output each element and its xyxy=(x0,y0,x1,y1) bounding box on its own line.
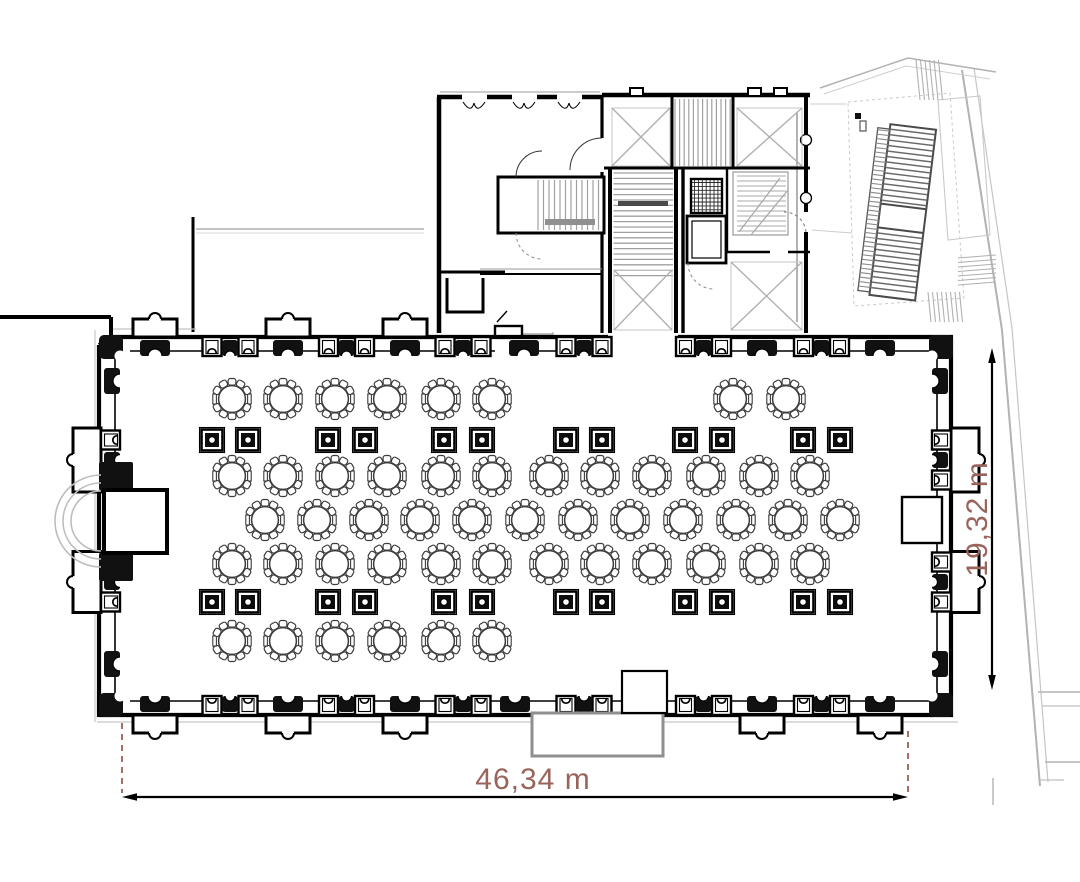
table-side-marker xyxy=(368,471,372,481)
table-chair xyxy=(437,655,445,662)
table-side-marker xyxy=(264,471,268,481)
table-chair xyxy=(313,534,321,541)
wall-pier xyxy=(774,88,787,96)
table-chair xyxy=(574,534,582,541)
table-chair xyxy=(279,655,287,662)
table-side-marker xyxy=(508,559,512,569)
table-chair xyxy=(331,490,339,497)
table-side-marker xyxy=(368,471,372,481)
table-side-marker xyxy=(633,471,637,481)
table-side-marker xyxy=(668,471,672,481)
table-side-marker xyxy=(769,515,773,525)
stair-tread xyxy=(921,60,925,100)
table-chair xyxy=(574,500,582,507)
structural-column xyxy=(554,428,579,453)
structural-column xyxy=(353,590,378,615)
table-top xyxy=(670,507,697,534)
table-chair xyxy=(365,534,373,541)
wall-arch-box xyxy=(472,696,491,715)
table-chair xyxy=(702,490,710,497)
table-top xyxy=(639,463,666,490)
wall-arch-box xyxy=(676,337,695,356)
table-chair xyxy=(331,456,339,463)
elevator xyxy=(687,179,726,263)
wall-arch-box xyxy=(436,337,455,356)
table-chair xyxy=(806,544,814,551)
table-chair xyxy=(545,490,553,497)
table-side-marker xyxy=(581,471,585,481)
table-chair xyxy=(383,578,391,585)
table-top xyxy=(428,463,455,490)
height-dimension-label: 19,32 m xyxy=(961,461,994,576)
table-chair xyxy=(755,490,763,497)
table-top xyxy=(219,551,246,578)
table-side-marker xyxy=(581,559,585,569)
table-chair xyxy=(702,490,710,497)
table-chair xyxy=(331,490,339,497)
table-chair xyxy=(596,544,604,551)
table-chair xyxy=(383,490,391,497)
table-chair xyxy=(437,621,445,628)
table-chair xyxy=(437,413,445,420)
annex-outline xyxy=(938,96,990,240)
wall-arch-box xyxy=(557,337,576,356)
wall-arch-box xyxy=(830,696,849,715)
structural-column xyxy=(470,590,495,615)
table-chair xyxy=(545,544,553,551)
table-chair xyxy=(383,456,391,463)
table-chair xyxy=(416,534,424,541)
stair-tread xyxy=(878,130,890,131)
table-chair xyxy=(437,578,445,585)
table-side-marker xyxy=(646,515,650,525)
table-chair xyxy=(365,534,373,541)
table-side-marker xyxy=(457,636,461,646)
stair-tread xyxy=(872,174,884,175)
stair-tread xyxy=(958,282,996,285)
table-side-marker xyxy=(316,559,320,569)
table-chair xyxy=(416,534,424,541)
table-side-marker xyxy=(457,394,461,404)
table-chair xyxy=(437,655,445,662)
table-side-marker xyxy=(508,471,512,481)
column-center xyxy=(441,599,448,606)
table-side-marker xyxy=(722,559,726,569)
stair-tread xyxy=(872,179,884,180)
table-side-marker xyxy=(717,515,721,525)
structural-column xyxy=(316,590,341,615)
table-chair xyxy=(545,456,553,463)
table-chair xyxy=(488,379,496,386)
wall-niche xyxy=(801,193,812,204)
table-chair xyxy=(313,534,321,541)
wall-arch-box xyxy=(355,337,374,356)
column-center xyxy=(245,599,252,606)
table-side-marker xyxy=(248,636,252,646)
table-chair xyxy=(331,621,339,628)
table-side-marker xyxy=(775,471,779,481)
table-chair xyxy=(755,490,763,497)
table-side-marker xyxy=(248,471,252,481)
wall-arch-box xyxy=(932,553,951,572)
table-chair xyxy=(279,456,287,463)
table-chair xyxy=(279,544,287,551)
structural-column xyxy=(353,428,378,453)
table-side-marker xyxy=(401,515,405,525)
stair-tread xyxy=(930,60,934,100)
table-top xyxy=(459,507,486,534)
wall-arch-box xyxy=(932,593,951,612)
table-side-marker xyxy=(351,636,355,646)
column-center xyxy=(362,437,369,444)
table-chair xyxy=(755,544,763,551)
table-side-marker xyxy=(299,394,303,404)
table-top xyxy=(322,551,349,578)
table-side-marker xyxy=(530,559,534,569)
table-chair xyxy=(228,379,236,386)
stair-tread xyxy=(861,264,873,265)
table-side-marker xyxy=(403,394,407,404)
table-chair xyxy=(648,490,656,497)
table-top xyxy=(693,551,720,578)
wall-arch-box xyxy=(794,696,813,715)
table-top xyxy=(512,507,539,534)
table-chair xyxy=(702,456,710,463)
table-side-marker xyxy=(473,471,477,481)
column-center xyxy=(209,437,216,444)
stair-tread xyxy=(960,292,963,322)
column-center xyxy=(325,437,332,444)
table-chair xyxy=(383,379,391,386)
table-chair xyxy=(836,534,844,541)
stair-tread xyxy=(866,223,878,224)
table-chair xyxy=(383,655,391,662)
stair-tread xyxy=(870,188,882,189)
column-center xyxy=(563,599,570,606)
table-top xyxy=(536,551,563,578)
stair-tread xyxy=(859,282,871,283)
table-chair xyxy=(228,578,236,585)
table-side-marker xyxy=(299,394,303,404)
table-side-marker xyxy=(299,636,303,646)
table-side-marker xyxy=(664,515,668,525)
entrance-steps-arc xyxy=(71,491,101,551)
table-side-marker xyxy=(299,559,303,569)
table-side-marker xyxy=(403,471,407,481)
table-chair xyxy=(702,456,710,463)
wall-arch-box xyxy=(319,696,338,715)
table-side-marker xyxy=(616,471,620,481)
table-side-marker xyxy=(248,559,252,569)
table-chair xyxy=(331,655,339,662)
table-chair xyxy=(228,621,236,628)
table-side-marker xyxy=(722,471,726,481)
table-side-marker xyxy=(594,515,598,525)
table-chair xyxy=(416,500,424,507)
table-chair xyxy=(437,456,445,463)
structural-column xyxy=(791,590,816,615)
table-side-marker xyxy=(457,471,461,481)
table-chair xyxy=(228,490,236,497)
table-chair xyxy=(331,456,339,463)
structural-column xyxy=(590,428,615,453)
table-chair xyxy=(468,534,476,541)
wall-niche xyxy=(115,691,126,702)
table-chair xyxy=(437,621,445,628)
table-chair xyxy=(488,621,496,628)
table-chair xyxy=(437,578,445,585)
table-chair xyxy=(383,379,391,386)
table-top xyxy=(479,463,506,490)
table-side-marker xyxy=(316,471,320,481)
table-side-marker xyxy=(316,559,320,569)
table-side-marker xyxy=(508,471,512,481)
table-side-marker xyxy=(453,515,457,525)
table-side-marker xyxy=(473,559,477,569)
structural-column xyxy=(710,428,735,453)
table-side-marker xyxy=(457,394,461,404)
table-side-marker xyxy=(298,515,302,525)
table-top xyxy=(219,463,246,490)
stair-tread xyxy=(875,152,887,153)
table-side-marker xyxy=(368,636,372,646)
structural-column xyxy=(828,590,853,615)
table-chair xyxy=(279,490,287,497)
wall-niche xyxy=(927,351,938,362)
table-chair xyxy=(648,490,656,497)
table-top xyxy=(773,386,800,413)
table-chair xyxy=(755,456,763,463)
table-side-marker xyxy=(422,394,426,404)
door-pier xyxy=(99,553,133,581)
column-center xyxy=(479,437,486,444)
table-chair xyxy=(702,578,710,585)
table-side-marker xyxy=(213,471,217,481)
table-chair xyxy=(545,490,553,497)
table-chair xyxy=(331,413,339,420)
table-side-marker xyxy=(802,394,806,404)
table-chair xyxy=(729,413,737,420)
table-side-marker xyxy=(530,471,534,481)
right-entrance xyxy=(902,497,942,543)
table-chair xyxy=(596,456,604,463)
site-boundary-line xyxy=(820,58,996,88)
table-top xyxy=(219,628,246,655)
stair-tread xyxy=(925,60,929,100)
structural-column xyxy=(710,590,735,615)
table-side-marker xyxy=(264,394,268,404)
wall-arch-box xyxy=(593,337,612,356)
table-side-marker xyxy=(264,636,268,646)
table-side-marker xyxy=(581,559,585,569)
table-chair xyxy=(228,621,236,628)
wall-arch-box xyxy=(203,337,222,356)
annex-diagonal-stair xyxy=(858,123,937,301)
table-side-marker xyxy=(717,515,721,525)
table-side-marker xyxy=(316,636,320,646)
table-side-marker xyxy=(722,559,726,569)
table-side-marker xyxy=(740,559,744,569)
table-chair xyxy=(679,534,687,541)
table-side-marker xyxy=(422,559,426,569)
table-side-marker xyxy=(350,515,354,525)
table-side-marker xyxy=(213,636,217,646)
table-chair xyxy=(784,500,792,507)
stair-tread xyxy=(955,292,958,322)
table-chair xyxy=(383,413,391,420)
table-chair xyxy=(261,500,269,507)
table-chair xyxy=(331,578,339,585)
table-side-marker xyxy=(594,515,598,525)
wall-pier xyxy=(630,88,643,96)
table-chair xyxy=(468,534,476,541)
structural-column xyxy=(200,590,225,615)
table-side-marker xyxy=(740,559,744,569)
table-top xyxy=(797,463,824,490)
column-center xyxy=(800,437,807,444)
table-chair xyxy=(782,379,790,386)
table-chair xyxy=(331,413,339,420)
table-top xyxy=(617,507,644,534)
table-chair xyxy=(437,490,445,497)
table-side-marker xyxy=(791,471,795,481)
table-side-marker xyxy=(213,559,217,569)
table-side-marker xyxy=(565,471,569,481)
table-chair xyxy=(331,655,339,662)
stair-tread xyxy=(865,232,877,233)
stair-tread xyxy=(958,260,996,263)
table-side-marker xyxy=(752,515,756,525)
table-chair xyxy=(806,490,814,497)
table-chair xyxy=(732,534,740,541)
upper-block xyxy=(437,88,812,366)
table-side-marker xyxy=(316,394,320,404)
table-side-marker xyxy=(687,559,691,569)
table-side-marker xyxy=(248,394,252,404)
table-side-marker xyxy=(581,471,585,481)
structural-column xyxy=(236,428,261,453)
table-top xyxy=(374,386,401,413)
table-top xyxy=(428,386,455,413)
table-side-marker xyxy=(821,515,825,525)
table-chair xyxy=(626,500,634,507)
table-chair xyxy=(365,500,373,507)
table-side-marker xyxy=(687,559,691,569)
table-top xyxy=(639,551,666,578)
south-porch xyxy=(532,713,663,756)
section-marker xyxy=(860,121,866,131)
table-side-marker xyxy=(668,471,672,481)
wall-arch-box xyxy=(932,431,951,450)
table-side-marker xyxy=(749,394,753,404)
stair-tread xyxy=(877,139,889,140)
column-center xyxy=(800,599,807,606)
wall-corner-pier xyxy=(99,691,126,718)
table-chair xyxy=(488,490,496,497)
left-entrance xyxy=(104,490,167,553)
stair-tread xyxy=(869,201,881,202)
table-side-marker xyxy=(453,515,457,525)
table-side-marker xyxy=(264,471,268,481)
stair-break-bar xyxy=(545,219,595,225)
table-side-marker xyxy=(714,394,718,404)
table-side-marker xyxy=(351,559,355,569)
table-chair xyxy=(648,544,656,551)
table-side-marker xyxy=(826,471,830,481)
table-side-marker xyxy=(351,471,355,481)
table-chair xyxy=(755,578,763,585)
table-chair xyxy=(488,490,496,497)
table-top xyxy=(407,507,434,534)
table-chair xyxy=(228,490,236,497)
table-chair xyxy=(488,456,496,463)
table-chair xyxy=(836,500,844,507)
column-center xyxy=(837,437,844,444)
column-center xyxy=(682,599,689,606)
table-chair xyxy=(755,456,763,463)
stair-tread xyxy=(946,292,949,322)
table-chair xyxy=(784,534,792,541)
table-chair xyxy=(437,379,445,386)
table-side-marker xyxy=(616,559,620,569)
table-chair xyxy=(679,500,687,507)
column-center xyxy=(325,599,332,606)
table-top xyxy=(775,507,802,534)
table-chair xyxy=(784,500,792,507)
table-chair xyxy=(261,534,269,541)
table-side-marker xyxy=(775,471,779,481)
south-vestibule xyxy=(622,671,667,713)
table-side-marker xyxy=(804,515,808,525)
table-chair xyxy=(596,544,604,551)
table-chair xyxy=(626,534,634,541)
table-chair xyxy=(679,534,687,541)
table-side-marker xyxy=(791,559,795,569)
table-side-marker xyxy=(422,559,426,569)
table-top xyxy=(428,551,455,578)
table-side-marker xyxy=(213,394,217,404)
table-chair xyxy=(279,621,287,628)
wall-corner-pier xyxy=(927,691,954,718)
table-chair xyxy=(732,500,740,507)
wall-arch-box xyxy=(472,337,491,356)
stair-tread xyxy=(958,273,996,276)
table-top xyxy=(374,463,401,490)
table-side-marker xyxy=(368,394,372,404)
table-side-marker xyxy=(316,394,320,404)
table-chair xyxy=(488,544,496,551)
table-side-marker xyxy=(351,471,355,481)
table-side-marker xyxy=(333,515,337,525)
table-chair xyxy=(545,456,553,463)
table-chair xyxy=(488,413,496,420)
table-side-marker xyxy=(403,636,407,646)
table-side-marker xyxy=(668,559,672,569)
stair-tread xyxy=(942,292,945,322)
table-side-marker xyxy=(749,394,753,404)
table-side-marker xyxy=(299,471,303,481)
table-chair xyxy=(626,500,634,507)
table-chair xyxy=(228,655,236,662)
table-side-marker xyxy=(401,515,405,525)
table-side-marker xyxy=(246,515,250,525)
table-side-marker xyxy=(687,471,691,481)
table-top xyxy=(219,386,246,413)
floor-plan-canvas: 46,34 m 19,32 m xyxy=(0,0,1080,882)
stair-tread xyxy=(937,292,940,322)
table-chair xyxy=(596,456,604,463)
table-chair xyxy=(648,578,656,585)
